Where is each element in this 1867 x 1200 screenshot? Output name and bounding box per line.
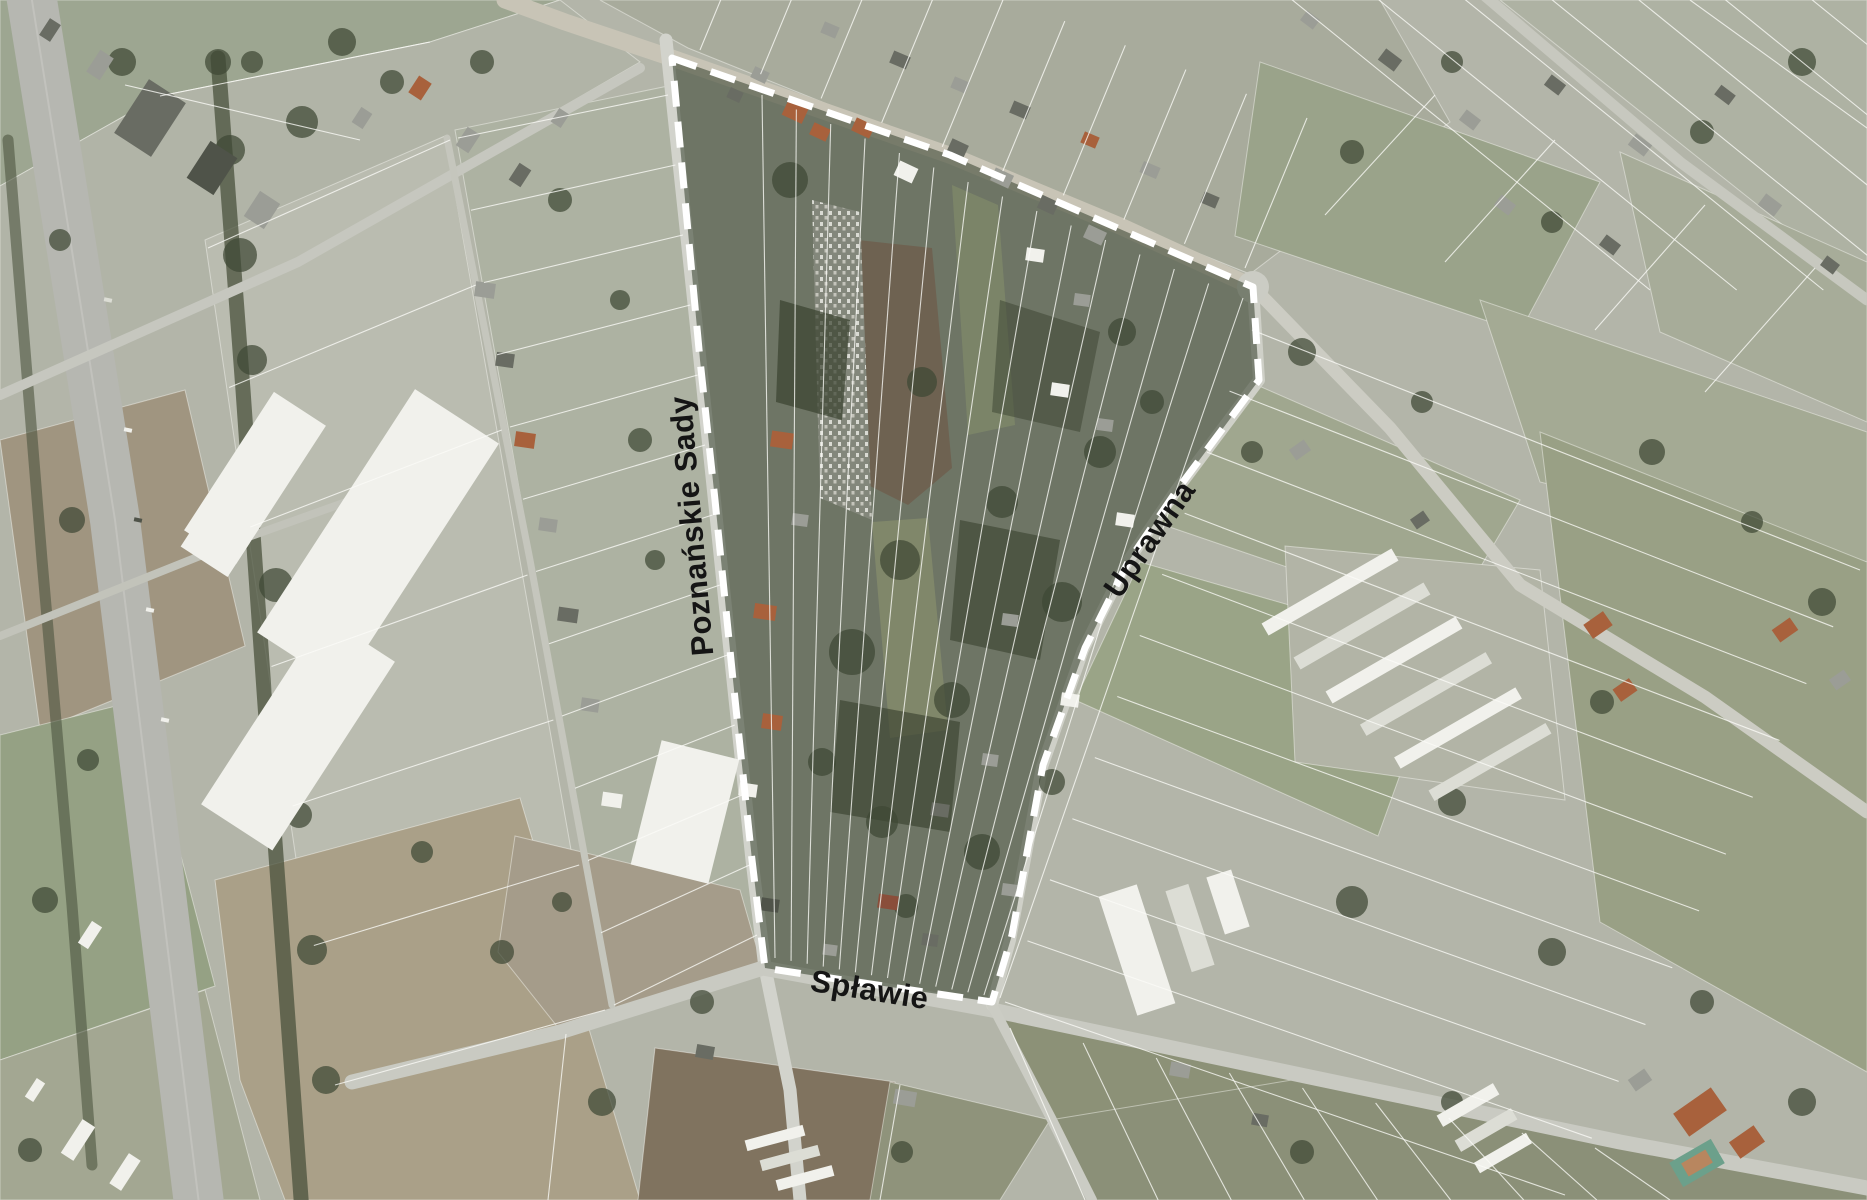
tree-cluster bbox=[1288, 338, 1316, 366]
tree-cluster bbox=[297, 935, 327, 965]
tree-canopy bbox=[776, 300, 850, 420]
building bbox=[557, 607, 579, 624]
tree-cluster bbox=[548, 188, 572, 212]
building bbox=[538, 517, 558, 532]
map-stage: Poznańskie Sady Uprawna Spławie bbox=[0, 0, 1867, 1200]
tree-cluster bbox=[1788, 1088, 1816, 1116]
tree-cluster bbox=[880, 540, 920, 580]
tree-cluster bbox=[380, 70, 404, 94]
tree-cluster bbox=[49, 229, 71, 251]
tree-cluster bbox=[1108, 318, 1136, 346]
tree-cluster bbox=[205, 49, 231, 75]
tree-cluster bbox=[690, 990, 714, 1014]
building bbox=[760, 897, 780, 912]
tree-cluster bbox=[1590, 690, 1614, 714]
building bbox=[601, 792, 623, 809]
tree-cluster bbox=[1639, 439, 1665, 465]
building bbox=[753, 603, 777, 621]
tree-cluster bbox=[552, 892, 572, 912]
tree-cluster bbox=[610, 290, 630, 310]
tree-cluster bbox=[108, 48, 136, 76]
tree-cluster bbox=[286, 106, 318, 138]
tree-cluster bbox=[312, 1066, 340, 1094]
tree-cluster bbox=[1084, 436, 1116, 468]
building bbox=[580, 697, 600, 712]
building bbox=[921, 933, 939, 947]
tree-cluster bbox=[1808, 588, 1836, 616]
building bbox=[981, 753, 999, 767]
building bbox=[1050, 382, 1070, 397]
tree-cluster bbox=[328, 28, 356, 56]
building bbox=[770, 431, 794, 450]
tree-cluster bbox=[1340, 140, 1364, 164]
tree-cluster bbox=[1541, 211, 1563, 233]
tree-cluster bbox=[1241, 441, 1263, 463]
tree-cluster bbox=[411, 841, 433, 863]
tree-cluster bbox=[772, 162, 808, 198]
tree-cluster bbox=[18, 1138, 42, 1162]
building bbox=[1001, 613, 1019, 627]
tree-cluster bbox=[891, 1141, 913, 1163]
building bbox=[474, 281, 496, 299]
tree-cluster bbox=[1042, 582, 1082, 622]
building bbox=[1096, 418, 1114, 432]
tree-cluster bbox=[490, 940, 514, 964]
tree-cluster bbox=[223, 238, 257, 272]
tree-cluster bbox=[32, 887, 58, 913]
tree-cluster bbox=[1741, 511, 1763, 533]
tree-cluster bbox=[645, 550, 665, 570]
tree-cluster bbox=[1538, 938, 1566, 966]
satellite-map-canvas[interactable]: Poznańskie Sady Uprawna Spławie bbox=[0, 0, 1867, 1200]
tree-cluster bbox=[829, 629, 875, 675]
tree-cluster bbox=[77, 749, 99, 771]
tree-cluster bbox=[1441, 51, 1463, 73]
tree-cluster bbox=[1290, 1140, 1314, 1164]
tree-cluster bbox=[470, 50, 494, 74]
tree-cluster bbox=[588, 1088, 616, 1116]
tree-cluster bbox=[1336, 886, 1368, 918]
building bbox=[514, 431, 536, 449]
tree-cluster bbox=[628, 428, 652, 452]
tree-cluster bbox=[1140, 390, 1164, 414]
building bbox=[1073, 293, 1091, 307]
tree-cluster bbox=[1690, 990, 1714, 1014]
tree-cluster bbox=[237, 345, 267, 375]
tree-canopy bbox=[950, 520, 1060, 660]
tree-cluster bbox=[241, 51, 263, 73]
tree-cluster bbox=[59, 507, 85, 533]
tree-cluster bbox=[1690, 120, 1714, 144]
